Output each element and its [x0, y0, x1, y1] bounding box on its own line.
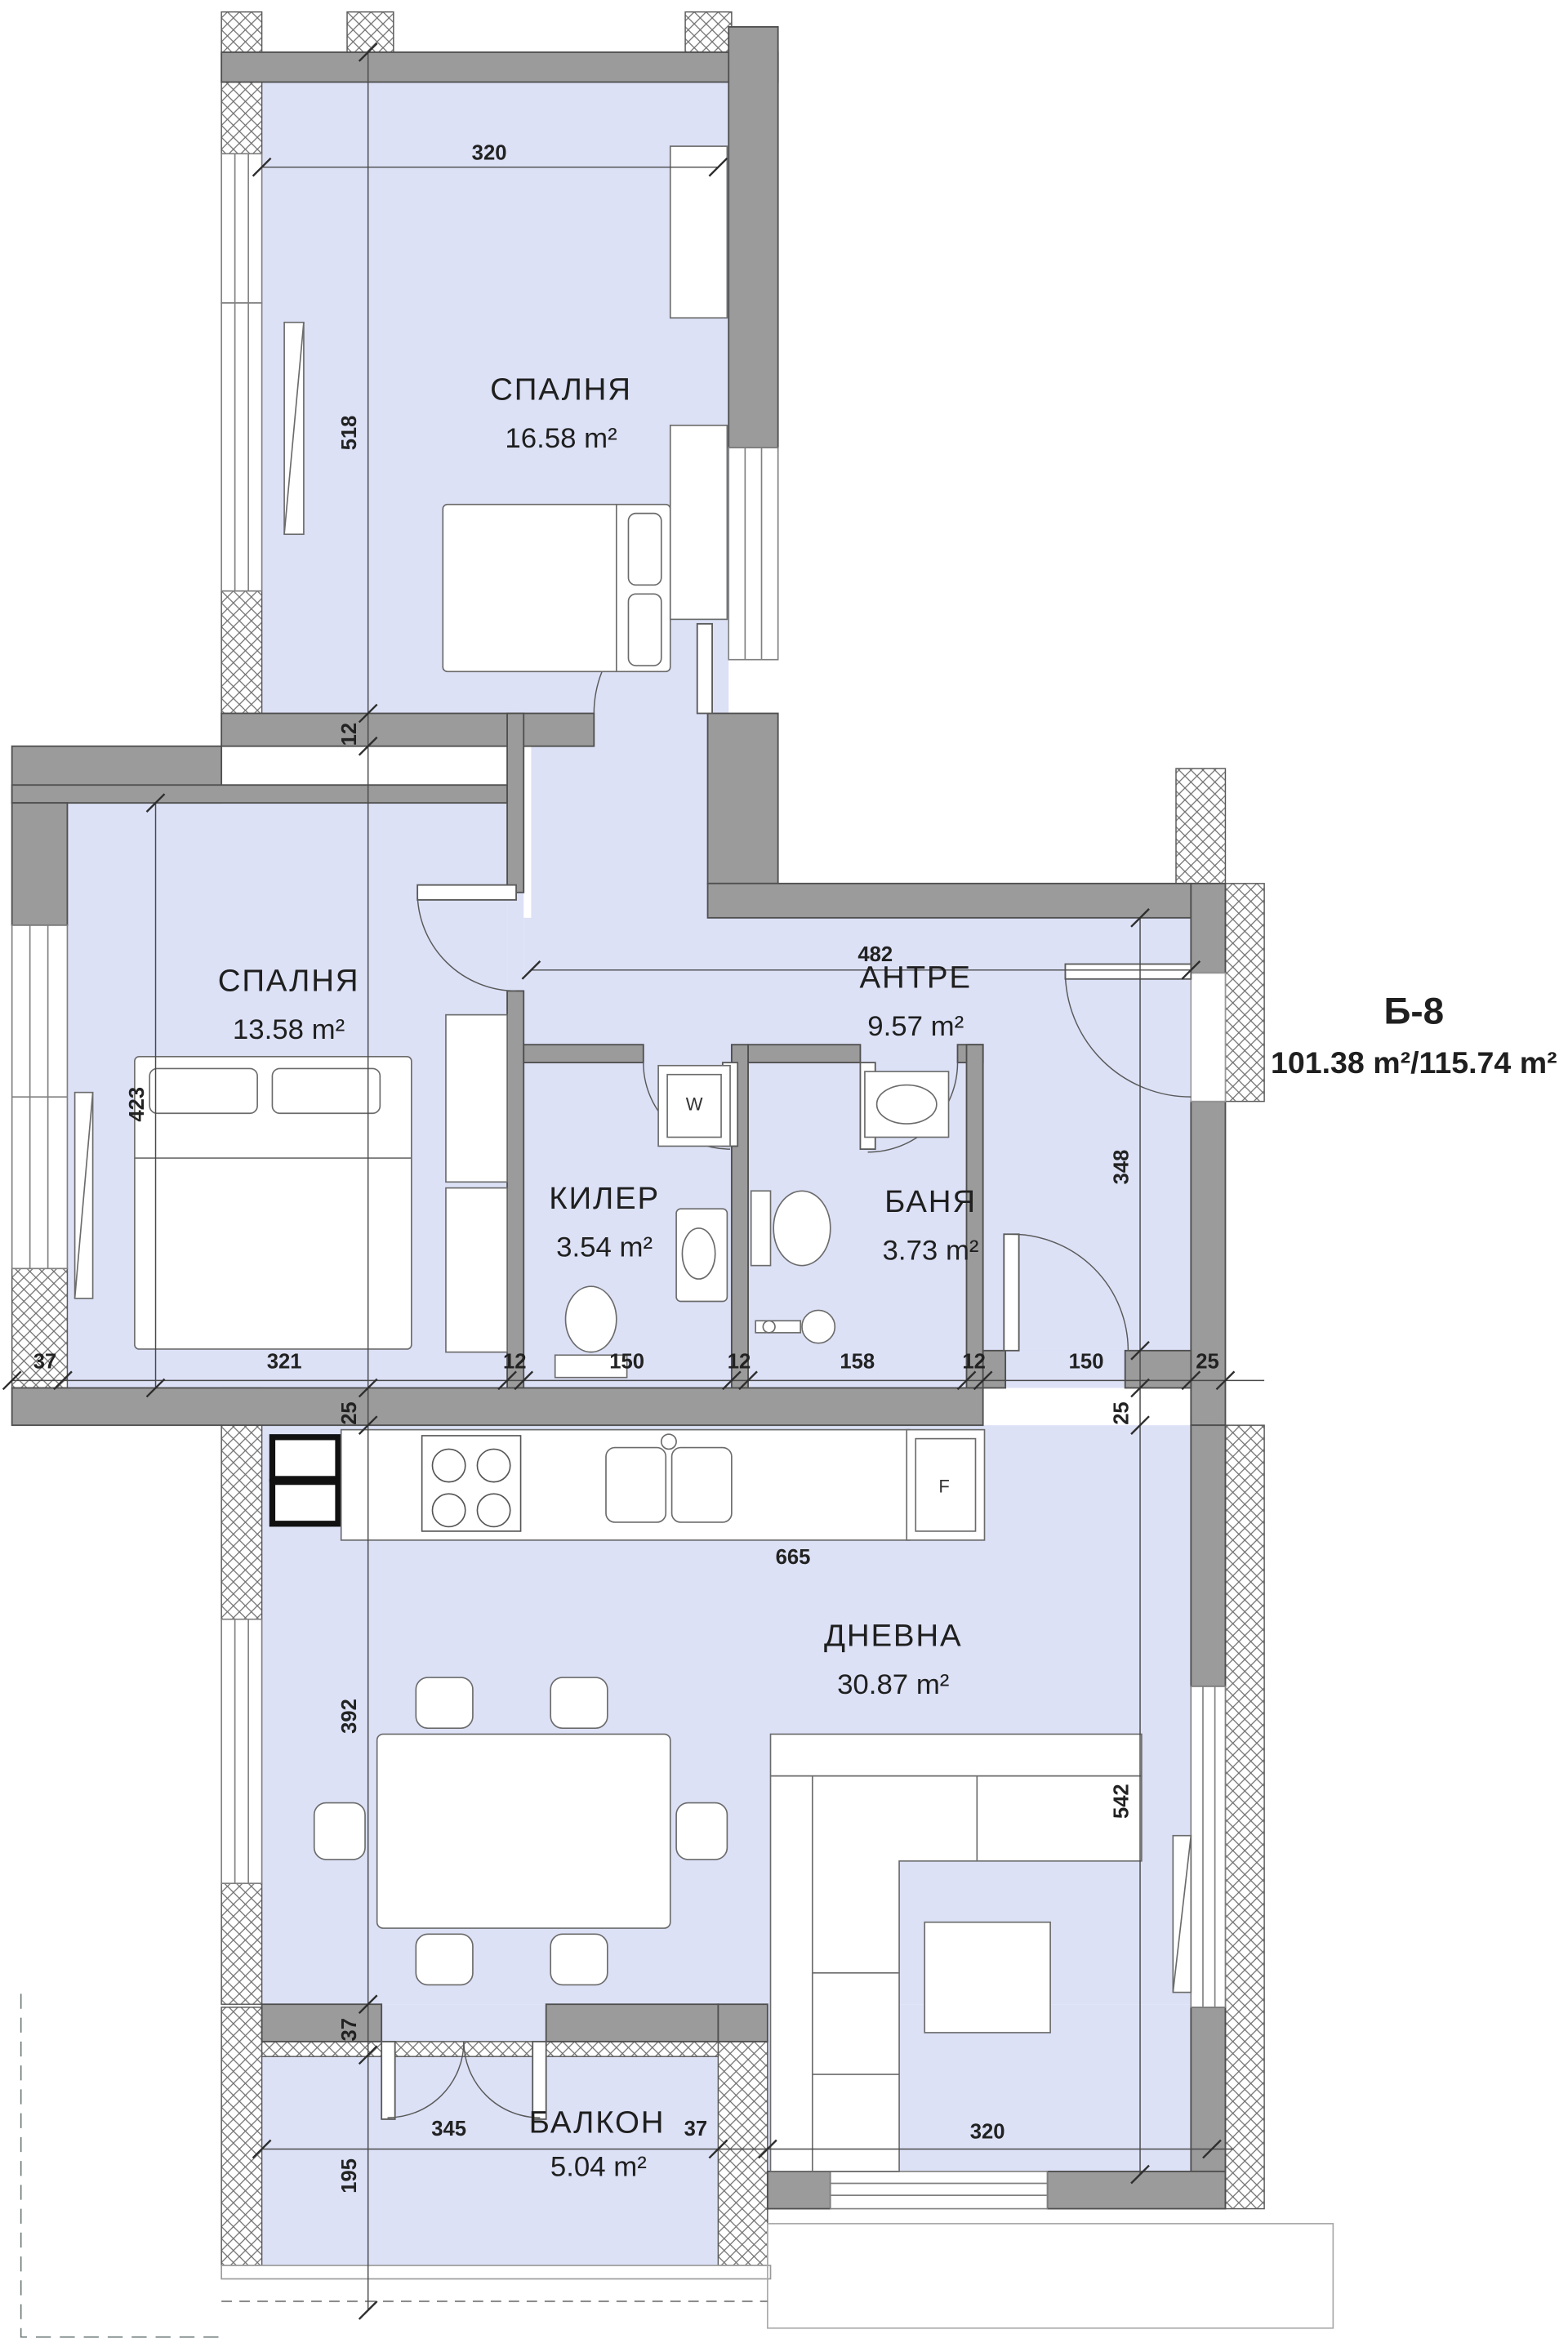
bed-bedroom2: [135, 1057, 412, 1349]
sink-closet: [676, 1209, 727, 1301]
window-living-right: [1191, 1686, 1225, 2007]
dim-balcony-wall-right: 37: [684, 2118, 708, 2140]
dim-top-width: 320: [472, 142, 507, 165]
dim-living-height-right: 542: [1110, 1784, 1133, 1819]
dim-bedroom1-height: 518: [338, 416, 361, 451]
room-area-hall: 9.57 m²: [867, 1011, 964, 1042]
balcony-door-gap: [381, 2004, 546, 2042]
room-area-closet: 3.54 m²: [556, 1232, 653, 1263]
radiator-bedroom1: [284, 323, 304, 534]
dim-row-1: 321: [267, 1351, 302, 1374]
radiator-bedroom2: [75, 1093, 93, 1298]
dim-row-2: 12: [503, 1351, 527, 1374]
balcony-floor: [262, 2042, 719, 2265]
room-label-bedroom1: СПАЛНЯ: [490, 372, 632, 408]
neighbor-balcony-outline: [768, 2224, 1334, 2328]
room-label-living: ДНЕВНА: [824, 1619, 963, 1654]
dim-row-0: 37: [33, 1351, 57, 1374]
radiator-living: [1173, 1836, 1191, 1993]
dim-row-8: 25: [1196, 1351, 1219, 1374]
dim-balcony-wall-37: 37: [338, 2018, 361, 2041]
floor-plan-page: 320 518 12 423 482 348 37 321 12 150 12 …: [0, 0, 1568, 2352]
floor-plan: 320 518 12 423 482 348 37 321 12 150 12 …: [0, 0, 1568, 2352]
window-living-bottom: [831, 2172, 1048, 2209]
bedroom2-door-gap: [507, 893, 523, 991]
room-area-balcony: 5.04 m²: [550, 2151, 647, 2182]
dim-row-5: 158: [840, 1351, 875, 1374]
dim-row-3: 150: [609, 1351, 644, 1374]
room-label-balcony: БАЛКОН: [529, 2105, 666, 2140]
room-label-bedroom2: СПАЛНЯ: [218, 963, 360, 998]
window-bedroom2-left: [12, 925, 68, 1268]
room-area-living: 30.87 m²: [837, 1669, 949, 1700]
dim-bedroom2-height: 423: [126, 1087, 149, 1122]
wardrobe-bedroom2-top: [446, 1015, 507, 1183]
kitchen-tall-cabinet: [272, 1437, 338, 1524]
wardrobe-bedroom1-bottom: [670, 425, 728, 620]
dim-wall-25-right: 25: [1110, 1401, 1133, 1424]
dim-wall-25-left: 25: [338, 1401, 361, 1424]
washer-label: W: [686, 1094, 703, 1115]
dim-wall-12: 12: [338, 723, 361, 746]
stove: [422, 1436, 521, 1531]
room-area-bedroom1: 16.58 m²: [505, 423, 617, 454]
unit-number: Б-8: [1383, 991, 1444, 1032]
wardrobe-bedroom2-bottom: [446, 1188, 507, 1352]
dim-row-6: 12: [962, 1351, 986, 1374]
wardrobe-bedroom1-top: [670, 146, 728, 318]
property-dashed-line: [21, 1993, 228, 2336]
dim-kitchen-width: 665: [776, 1546, 811, 1569]
dim-entry-height: 348: [1110, 1150, 1133, 1185]
fridge-label: F: [938, 1476, 949, 1496]
sink-bath: [865, 1071, 949, 1137]
room-label-closet: КИЛЕР: [549, 1181, 660, 1216]
window-bedroom1-left-2: [221, 303, 261, 591]
bath-door-gap: [860, 1045, 957, 1062]
unit-areas: 101.38 m²/115.74 m²: [1271, 1045, 1557, 1080]
living-door-gap: [1005, 1351, 1125, 1388]
toilet-bath: [751, 1191, 831, 1265]
room-area-bedroom2: 13.58 m²: [233, 1014, 345, 1045]
room-label-hall: АНТРЕ: [860, 960, 972, 996]
dim-living-height-left: 392: [338, 1699, 361, 1734]
room-area-bath: 3.73 m²: [883, 1235, 979, 1266]
closet-door-gap: [644, 1045, 732, 1062]
unit-title: Б-8 101.38 m²/115.74 m²: [1271, 991, 1557, 1080]
entry-door-opening: [1191, 973, 1225, 1101]
window-bedroom1-right: [728, 448, 777, 659]
window-bedroom1-left-1: [221, 154, 261, 303]
dim-balcony-width: 345: [431, 2118, 466, 2140]
dim-row-4: 12: [728, 1351, 751, 1374]
balcony-railing: [221, 2265, 770, 2278]
window-living-left: [221, 1619, 261, 1883]
bed-bedroom1: [443, 505, 670, 672]
room-label-bath: БАНЯ: [884, 1184, 977, 1219]
dim-balcony-depth: 195: [338, 2158, 361, 2194]
ottoman: [924, 1922, 1050, 2033]
dim-living-bottom-width: 320: [970, 2121, 1005, 2144]
dim-row-7: 150: [1069, 1351, 1104, 1374]
